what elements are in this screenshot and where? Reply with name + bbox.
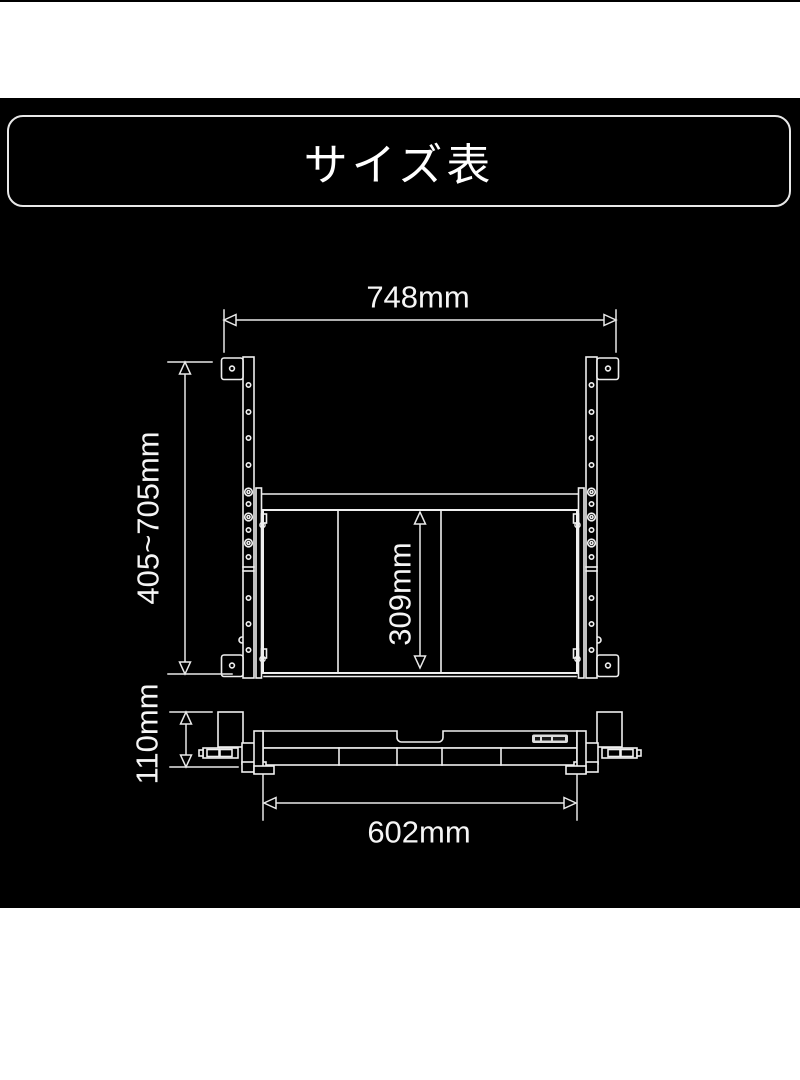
dimension-diagram: 748mm bbox=[0, 98, 800, 908]
dimension-tray-width: 602mm bbox=[263, 775, 577, 850]
bracket-height-label: 110mm bbox=[130, 683, 165, 784]
tray-side-profile bbox=[263, 731, 577, 765]
front-view: 748mm bbox=[131, 280, 619, 679]
overall-width-label: 748mm bbox=[366, 280, 469, 315]
size-chart-page: サイズ表 bbox=[0, 0, 800, 1080]
tray-depth-label: 309mm bbox=[383, 542, 418, 645]
diagram-panel: サイズ表 bbox=[0, 98, 800, 908]
brand-label bbox=[532, 735, 568, 744]
side-view: 110mm bbox=[130, 683, 642, 849]
dimension-overall-width: 748mm bbox=[224, 280, 616, 353]
height-range-label: 405~705mm bbox=[131, 431, 166, 604]
left-wall-bracket bbox=[199, 712, 274, 774]
right-rail bbox=[574, 357, 619, 678]
dimension-tray-depth: 309mm bbox=[383, 512, 426, 668]
tray-width-label: 602mm bbox=[367, 815, 470, 850]
right-wall-bracket bbox=[566, 712, 641, 774]
top-edge-divider bbox=[0, 0, 800, 2]
left-rail bbox=[222, 357, 267, 678]
dimension-height-range: 405~705mm bbox=[131, 362, 233, 674]
